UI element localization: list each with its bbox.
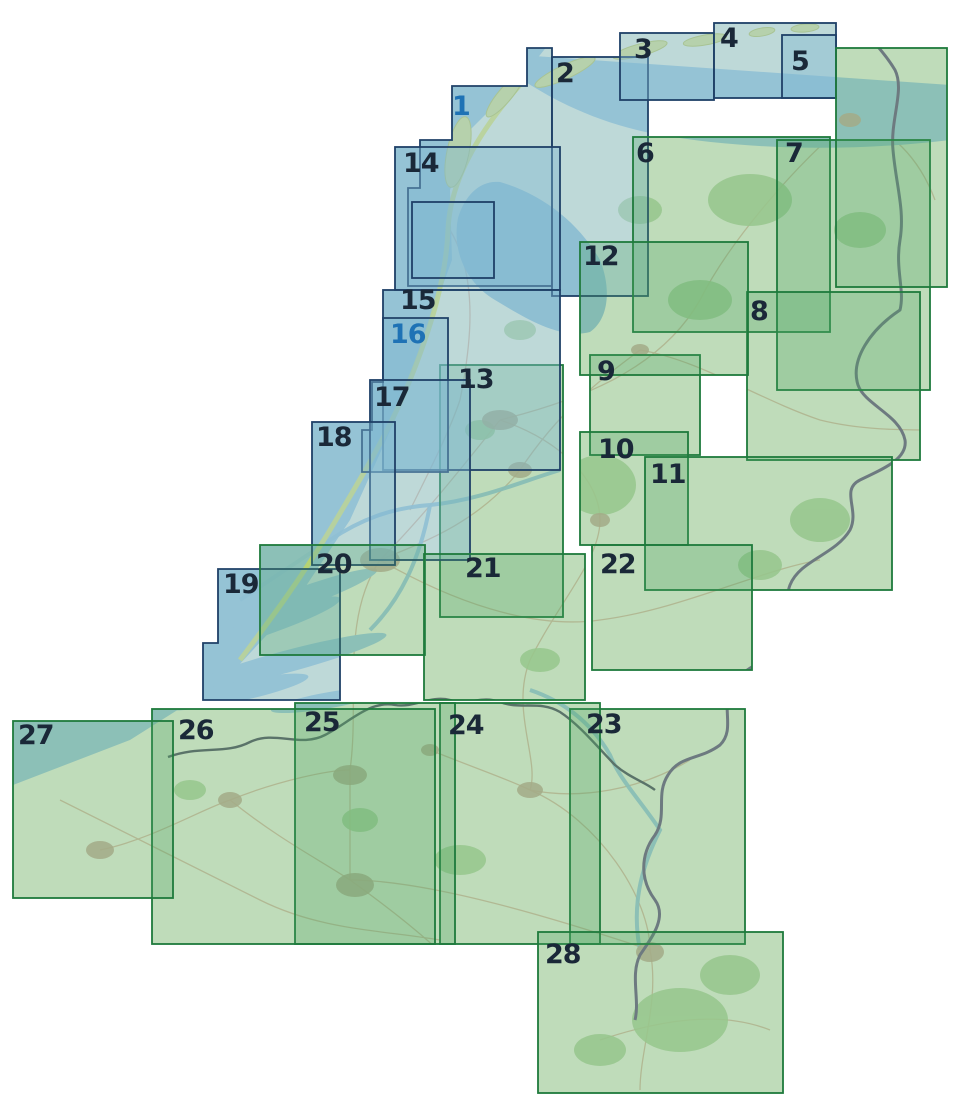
sheet-7-label: 7 [785, 138, 803, 169]
sheet-26-label: 26 [178, 715, 214, 746]
sheet-16-label: 16 [390, 319, 426, 350]
sheet-1-label: 1 [452, 91, 470, 122]
sheet-27-label: 27 [18, 720, 54, 751]
sheet-18-label: 18 [316, 422, 352, 453]
sheet-21-label: 21 [465, 553, 501, 584]
sheet-22-label: 22 [600, 549, 636, 580]
sheet-21[interactable] [424, 554, 585, 700]
sheet-unlabeled-29 [836, 48, 947, 287]
sheet-3-label: 3 [634, 34, 652, 65]
sheet-23-label: 23 [586, 709, 622, 740]
sheet-25-label: 25 [304, 707, 340, 738]
sheet-9-label: 9 [597, 356, 615, 387]
sheet-index-map: 1234567891011121314151617181920212223242… [0, 0, 960, 1108]
sheet-24-label: 24 [448, 710, 484, 741]
sheet-10-label: 10 [598, 434, 634, 465]
sheet-11-label: 11 [650, 459, 686, 490]
sheet-28-label: 28 [545, 939, 581, 970]
sheet-19-label: 19 [223, 569, 259, 600]
sheet-4-label: 4 [720, 23, 738, 54]
sheet-8[interactable] [747, 292, 920, 460]
sheet-6-label: 6 [636, 138, 654, 169]
sheet-unlabeled-28 [412, 202, 494, 278]
map-canvas: 1234567891011121314151617181920212223242… [0, 0, 960, 1108]
sheet-5-label: 5 [791, 46, 809, 77]
sheet-12-label: 12 [583, 241, 619, 272]
sheet-20-label: 20 [316, 549, 352, 580]
sheet-2-label: 2 [556, 58, 574, 89]
sheet-8-label: 8 [750, 296, 768, 327]
sheet-13-label: 13 [458, 364, 494, 395]
sheet-17-label: 17 [374, 382, 410, 413]
sheet-14-label: 14 [403, 148, 439, 179]
sheet-15-label: 15 [400, 285, 436, 316]
